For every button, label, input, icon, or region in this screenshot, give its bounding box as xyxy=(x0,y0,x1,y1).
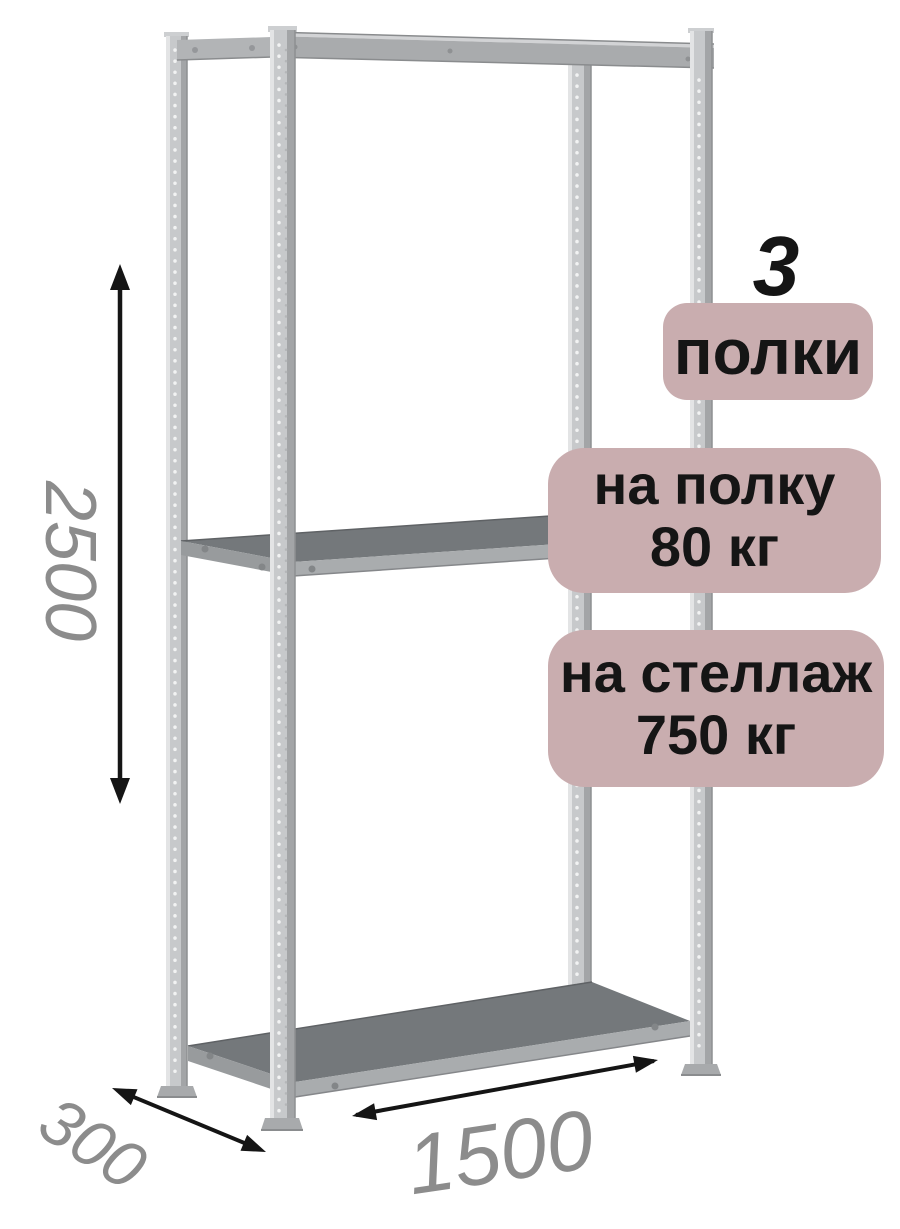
rack-load-badge: на стеллаж 750 кг xyxy=(548,630,884,787)
shelf-load-label: на полку xyxy=(594,454,836,516)
shelf-load-badge: на полку 80 кг xyxy=(548,448,881,593)
rack-top-side-beam xyxy=(177,37,272,60)
rack-post-rear-left xyxy=(157,32,197,1097)
shelf-load-value: 80 кг xyxy=(650,516,779,578)
height-arrow xyxy=(110,264,130,804)
rack-load-label: на стеллаж xyxy=(560,642,872,704)
rack-bottom-shelf xyxy=(188,982,690,1097)
rack-top-shelf xyxy=(270,32,714,68)
rack-post-front-left xyxy=(261,26,303,1130)
shelves-count-badge: полки xyxy=(663,303,873,400)
rack-illustration xyxy=(0,0,900,1200)
rack-load-value: 750 кг xyxy=(636,704,796,766)
shelves-count-number: 3 xyxy=(726,216,826,316)
product-image: 3 полки на полку 80 кг на стеллаж 750 кг… xyxy=(0,0,900,1200)
shelves-count-label: полки xyxy=(674,320,862,384)
height-dimension-label: 2500 xyxy=(30,441,110,681)
